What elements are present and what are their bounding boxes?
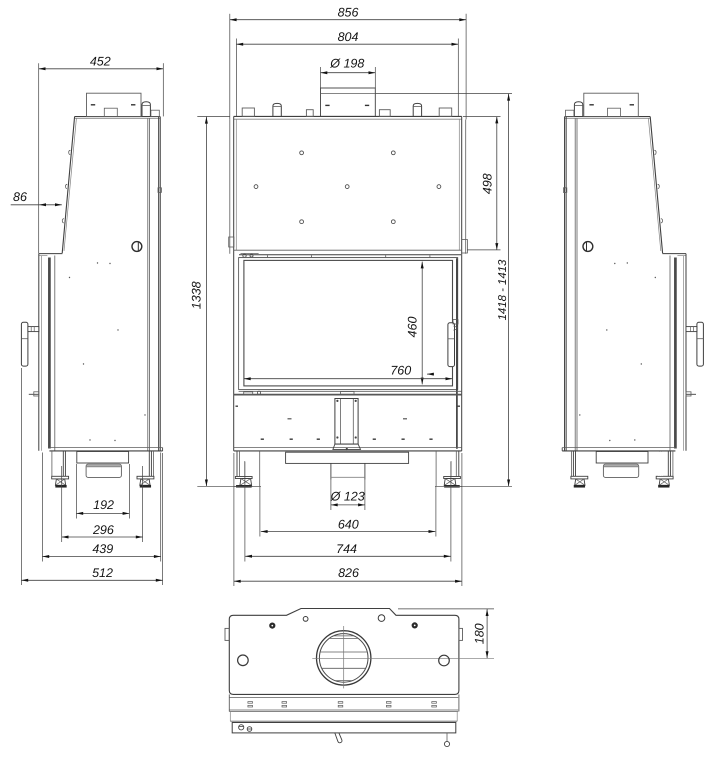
svg-text:640: 640 bbox=[338, 517, 359, 531]
svg-text:86: 86 bbox=[13, 190, 27, 204]
svg-text:826: 826 bbox=[338, 566, 359, 580]
svg-text:296: 296 bbox=[92, 523, 114, 537]
svg-text:856: 856 bbox=[338, 5, 359, 19]
svg-text:744: 744 bbox=[336, 542, 357, 556]
svg-text:498: 498 bbox=[480, 173, 494, 194]
svg-text:760: 760 bbox=[390, 364, 411, 378]
svg-text:512: 512 bbox=[92, 566, 113, 580]
svg-text:Ø 123: Ø 123 bbox=[330, 489, 365, 503]
svg-text:1418 - 1413: 1418 - 1413 bbox=[497, 259, 509, 320]
svg-text:804: 804 bbox=[338, 30, 359, 44]
svg-text:460: 460 bbox=[405, 317, 419, 338]
svg-text:1338: 1338 bbox=[189, 281, 203, 309]
svg-text:452: 452 bbox=[90, 55, 111, 69]
svg-text:192: 192 bbox=[93, 498, 114, 512]
svg-text:180: 180 bbox=[472, 623, 486, 644]
svg-text:Ø 198: Ø 198 bbox=[329, 56, 364, 70]
svg-text:439: 439 bbox=[92, 542, 113, 556]
